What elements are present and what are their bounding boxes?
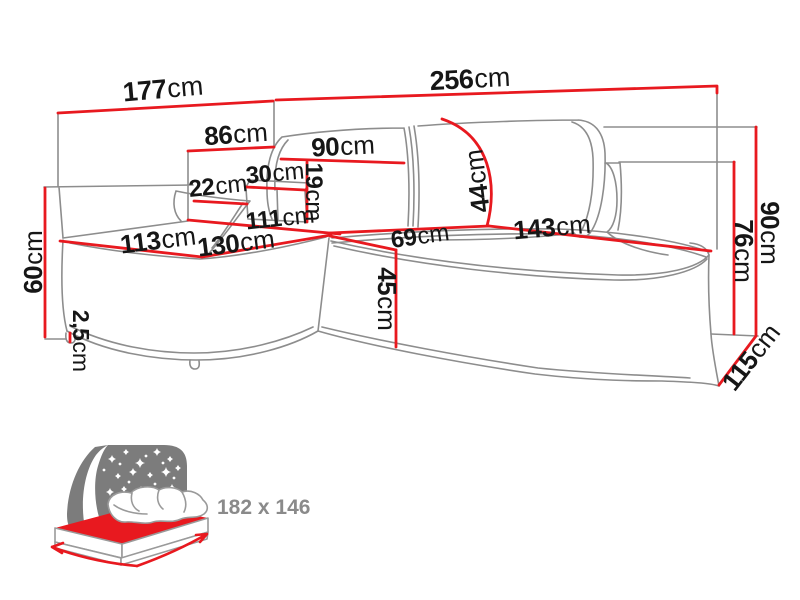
diagram-stage: 177cm256cm86cm90cm30cm22cm19cm111cm113cm… — [0, 0, 800, 600]
star-icon — [173, 477, 176, 480]
sleeping-size-label: 182 x 146 — [217, 496, 310, 519]
front-leg-center — [190, 360, 199, 369]
dim-label-side-depth: 115cm — [716, 318, 787, 396]
dim-label-chaise-side-height: 60cm — [18, 230, 48, 294]
dim-label-backrest-height: 44cm — [458, 148, 496, 215]
dim-label-headrest-width: 30cm — [245, 157, 306, 189]
dim-label-leg-height: 2,5cm — [68, 310, 94, 372]
dim-label-seat-depth: 69cm — [389, 219, 451, 254]
dimension-labels: 177cm256cm86cm90cm30cm22cm19cm111cm113cm… — [18, 62, 786, 396]
star-icon — [162, 462, 165, 465]
star-icon — [145, 455, 148, 458]
dim-label-back-right-width: 256cm — [429, 62, 511, 96]
dim-label-armrest-width: 22cm — [187, 170, 248, 203]
sofa-bed-icon — [52, 445, 208, 566]
chaise-bottom-outer — [67, 331, 318, 360]
dim-label-chaise-depth: 130cm — [196, 223, 277, 262]
dim-label-back-left-width: 177cm — [122, 71, 205, 108]
dim-label-arm-height: 76cm — [729, 219, 759, 283]
star-icon — [103, 469, 106, 472]
dim-label-seat-width: 143cm — [512, 209, 592, 246]
dim-label-chaise-front-width: 113cm — [118, 220, 197, 259]
dim-label-backrest-cushion-width: 90cm — [310, 129, 375, 162]
star-icon — [119, 463, 122, 466]
dim-label-chaise-back-width: 86cm — [203, 117, 269, 151]
dim-label-seat-front-height: 45cm — [372, 267, 402, 331]
star-icon — [154, 483, 157, 486]
sofa-dimension-diagram: 177cm256cm86cm90cm30cm22cm19cm111cm113cm… — [0, 0, 800, 600]
star-icon — [128, 481, 131, 484]
dim-line-22 — [194, 201, 247, 204]
chaise-right-edge — [318, 238, 329, 331]
chaise-left-edge — [62, 240, 67, 331]
